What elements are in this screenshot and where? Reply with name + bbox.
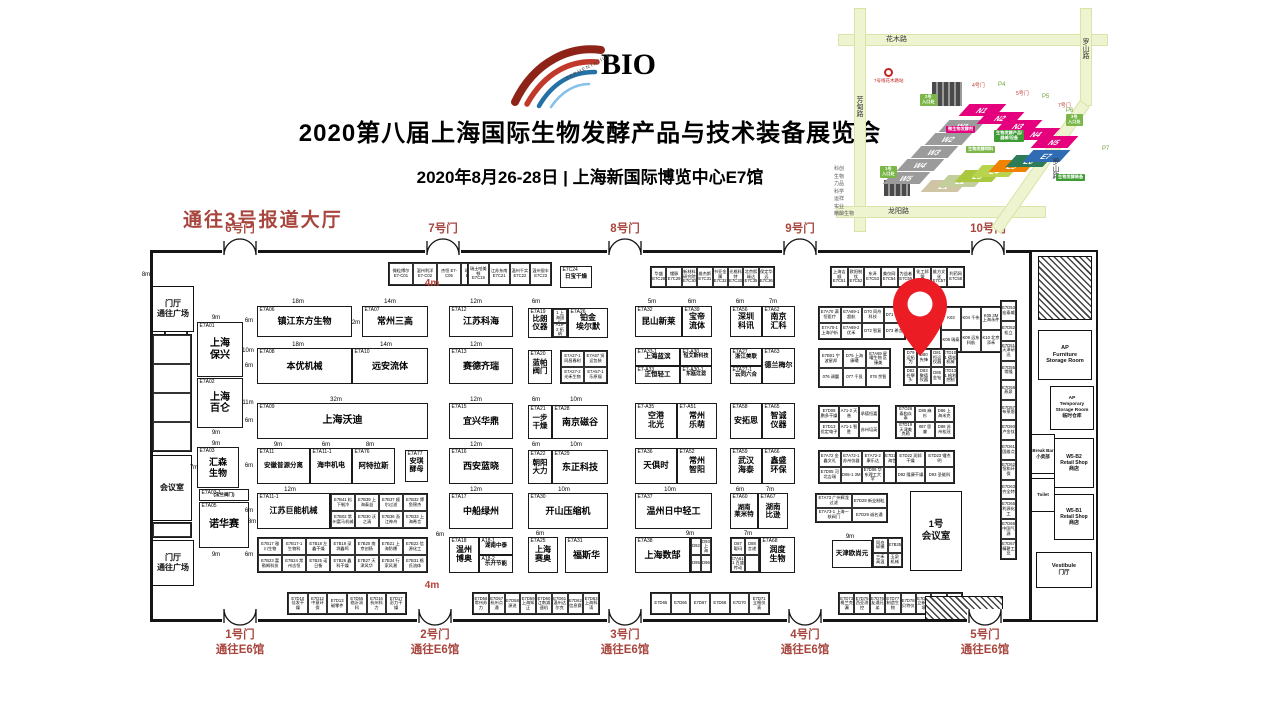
room-门厅-通往广场: 门厅 通往广场 — [152, 286, 194, 332]
dimension-label: 10m — [664, 487, 676, 493]
door-icon — [970, 237, 1006, 260]
booth-E7A62: E7A62南京 汇科 — [762, 306, 795, 337]
mini-booth: E7D12 中意环保 — [308, 593, 328, 614]
booth-code: E7A08 — [260, 350, 275, 355]
gate-label-6号门: 6号门 — [225, 222, 254, 237]
booth-E7A07: E7A07常州三高 — [362, 306, 428, 337]
mini-booth: 杰恒 E7-C05 — [437, 263, 461, 285]
dimension-label: 18m — [292, 299, 304, 305]
mini-booth: E7B33 上海希言 — [403, 511, 427, 528]
booth-grid: E7D56 常州苏力E7D57 杭州点通E7D58 源进E7D59 上海知正E7… — [472, 592, 600, 615]
dimension-label: 6m — [245, 552, 253, 558]
mini-booth: 新材料研究院 E7C30 — [682, 267, 697, 287]
dimension-label: 32m — [330, 397, 342, 403]
door-icon — [222, 237, 258, 260]
map-label-P7: P7 — [1102, 146, 1109, 152]
gate-label-7号门: 7号门 — [428, 222, 457, 237]
booth-name: 上海数郜 — [644, 550, 680, 560]
mini-booth: D83 聚德仪器 — [917, 367, 930, 385]
dimension-label: 12m — [470, 397, 482, 403]
booth-E7A15: E7A15宜兴华鼎 — [449, 403, 513, 439]
booth-E7A21: E7A21一步 干燥 — [528, 405, 552, 439]
door-icon — [222, 604, 258, 627]
booth-E7A29: E7A29东正科技 — [552, 450, 608, 484]
dimension-label: 6m — [736, 299, 744, 305]
mini-booth: D93 圣能科 — [925, 467, 954, 483]
mini-booth: E7D06 华东理工大学 — [862, 467, 884, 483]
dimension-label: 6m — [245, 318, 253, 324]
booth-name: 南京磁谷 — [562, 417, 598, 427]
mini-booth: D70 同舟科技 — [862, 307, 884, 323]
booth-name: 温州 博奥 — [456, 546, 472, 564]
booth-code: E7A62 — [765, 308, 780, 313]
map-tag: 生物发酵产品/ 器械/设备 — [994, 130, 1024, 142]
corridor-label: 通往3号报道大厅 — [183, 205, 343, 232]
booth-E7-A35: E7-A35空港 北光 — [635, 403, 677, 439]
dimension-label: 6m — [736, 487, 744, 493]
booth-E7A32: E7A32昆山新莱 — [635, 306, 682, 337]
booth-name: 天津欧尚元 — [836, 550, 869, 557]
booth-E7A65: E7A65智诚 仪器 — [762, 403, 795, 439]
mini-booth: A71-2 天香 — [839, 406, 859, 422]
mini-booth: 苏州培英 — [859, 422, 879, 438]
road — [854, 8, 866, 232]
mini-booth: D88 言递 — [745, 538, 759, 555]
dimension-label: 9m — [846, 534, 854, 540]
booth-name: 恒艾斯科技 — [683, 354, 708, 360]
booth-E7A19: E7A19比朗 仪器 — [528, 308, 552, 338]
booth-grid: E7D53 宏泰威E7D52 松立E7D51 天津研迅E7D55 常隆E7D58… — [1000, 300, 1017, 560]
mini-booth: E7A61-1 百盛传动 — [731, 555, 745, 572]
booth-grid: 瑞士哈美顿 E7C19江苏东南 E7C21温州千实 E7C22温州银丰 E7C2… — [467, 262, 552, 286]
mini-booth: E7B02 常州富马机械 — [331, 511, 355, 528]
mini-booth: E7A72 金鑫文礼 — [819, 451, 841, 467]
booth-grid — [152, 522, 192, 538]
booth-E7A02: E7A02上海 百仑 — [197, 378, 243, 428]
metro-station-icon: 7号线花木路站 — [874, 68, 904, 83]
mini-booth: E7D67 — [690, 593, 710, 614]
booth-code: E7A03-1 — [202, 491, 221, 496]
booth-code: E7A36 — [638, 450, 653, 455]
booth-code: E7-A33 — [638, 368, 655, 373]
booth-code: E7A22 — [531, 452, 546, 457]
mini-booth: D95 — [691, 555, 701, 572]
mini-booth: 微粒博尔 E7-C01 — [389, 263, 413, 285]
mini-booth: E7D62 恒和环保 — [1001, 460, 1016, 480]
booth-code: E7A33-1 — [638, 350, 657, 355]
booth-name: 上海沃迪 — [323, 415, 363, 426]
map-tag: 生物发酵装备 — [1056, 174, 1085, 181]
mini-booth: E7D61 温州达尔克 — [552, 593, 568, 614]
mini-booth: E7A70-1 上海沪析 — [819, 323, 841, 339]
mini-booth: E7B17-1 生物科 — [282, 538, 306, 555]
mini-booth: E7D22 润邦干燥 — [896, 451, 925, 467]
road — [838, 34, 1108, 46]
map-tag: 1号 入口处 — [880, 166, 897, 178]
booth-E7A18: E7A18温州 博奥 — [449, 537, 479, 573]
map-side-text: 科创 生物 力品 科学 运祥 实业 精酿生物 — [834, 166, 854, 219]
mini-booth: D65-1 3M — [841, 467, 863, 483]
dimension-label: 6m — [245, 418, 253, 424]
mini-booth: E7B19 深圳鑫鸣 — [330, 538, 354, 555]
map-tag: 微生物发酵剂 — [946, 126, 975, 133]
booth-code: E7A28 — [555, 407, 570, 412]
booth-name: 鑫盛 环保 — [771, 457, 787, 475]
booth-code: E7A12 — [452, 308, 467, 313]
booth-name: 润度 生物 — [770, 546, 786, 564]
booth-code: E7A26 — [571, 310, 586, 315]
mini-booth — [153, 422, 191, 451]
mini-booth: D72 智复 — [862, 323, 884, 339]
mini-booth: E7D65 — [651, 593, 671, 614]
booth-E7A05: E7A05诺华赛 — [199, 502, 249, 548]
booth-code: E7A25 — [531, 539, 546, 544]
gate-label-5号门: 5号门 通往E6馆 — [961, 628, 1010, 658]
booth-name: 温州日中轻工 — [646, 506, 700, 516]
booth-code: E7A37 — [638, 495, 653, 500]
mini-booth: 077 千艮 — [843, 368, 867, 387]
dimension-label: 6m — [688, 299, 696, 305]
map-label-龙阳路: 龙阳路 — [888, 208, 909, 215]
mini-booth: 上海吉顺 E7C51 — [831, 267, 848, 287]
booth-grid: D87 聪玛D88 言递E7A61-1 百盛传动 — [730, 537, 760, 573]
booth-code: E7A19 — [531, 310, 546, 315]
dimension-label: 9m — [212, 315, 220, 321]
dimension-label: 6m — [322, 442, 330, 448]
booth-E7A06: E7A06镇江东方生物 — [257, 306, 352, 337]
mini-booth: E7B22 信源化工 — [403, 538, 427, 555]
mini-booth: E7D57 杭州点通 — [489, 593, 505, 614]
booth-name: 昆山新莱 — [641, 317, 675, 327]
booth-grid: E7A72 金鑫文礼E7A72-1 苏州仪器E7A72-2 康乐达E7D21 上… — [818, 450, 906, 484]
mini-booth: 镭脉 E7C29 — [666, 267, 681, 287]
exhibition-floorplan-flyer: { "header": { "logo_text": "BIO", "logo_… — [0, 0, 1280, 720]
booth-E7A26: E7A26铂金 埃尔默 — [568, 308, 608, 338]
booth-E7A09: E7A09上海沃迪 — [257, 403, 428, 439]
dimension-label: 6m — [532, 397, 540, 403]
mini-booth: K04 千伟 — [961, 307, 981, 330]
mini-booth: E7A27-2 光禾生物 — [561, 367, 584, 383]
booth-E7A39: E7A39宝帝 流体 — [682, 306, 712, 337]
room-Break Bar-小卖部: Break Bar 小卖部 — [1031, 434, 1055, 474]
room-1号-会议室: 1号 会议室 — [910, 491, 962, 571]
room-AP-Furniture-Storage Room: AP Furniture Storage Room — [1038, 330, 1092, 380]
venue-map-inset: W1W2W3W4W5N1N2N3N4N5E1E2E3E4E5E6E7花木路罗山路… — [828, 8, 1128, 232]
map-label-花木路: 花木路 — [886, 36, 907, 43]
room-Toilet: Toilet — [1031, 478, 1055, 512]
booth-E7-A33: E7-A33正恒轻工 — [635, 366, 680, 384]
map-tag: 生物发酵饲料 — [966, 146, 995, 153]
hall-W2: W2 — [925, 133, 973, 145]
mini-booth: 玉泉机械 — [888, 553, 903, 568]
mini-booth: 温州千实 E7C22 — [510, 263, 531, 285]
mini-booth: E7B23 富勒姆科技 — [258, 555, 282, 572]
booth-code: E7A05 — [202, 504, 217, 509]
mini-booth: E7B26 鑫科干燥 — [330, 555, 354, 572]
booth-name: 空港 北光 — [648, 412, 664, 430]
mini-booth: D82 任學头 — [904, 367, 917, 385]
mini-booth: E7A73 广州辉龙过滤 — [816, 494, 852, 508]
mini-booth: E7D60 卢金钛 — [1001, 420, 1016, 440]
booth-code: E7A52 — [680, 450, 695, 455]
mini-booth: E7D70 — [730, 593, 750, 614]
booth-grid: D92D93 上海D95D96 — [690, 537, 712, 573]
mini-booth: D85 麻杉 — [915, 406, 934, 422]
booth-E7A27-1: E7A27-1云同六合 — [730, 366, 762, 384]
stairs-hatch — [1038, 256, 1092, 320]
booth-E7A52: E7A52常州 智阳 — [677, 448, 717, 484]
booth-name: 云同六合 — [735, 372, 757, 378]
booth-code: E7A16 — [452, 450, 467, 455]
booth-grid: E7B41 松下制冷E7B39 上海泰益E7B37 顺尔过滤E7B32 博鱼锦杰… — [330, 493, 428, 529]
mini-booth: E7B01 宁波星邦 — [819, 349, 843, 368]
booth-E7A28: E7A28南京磁谷 — [552, 405, 608, 439]
booth-name: 上海 保兴 — [210, 338, 230, 360]
room-门厅-通往广场: 门厅 通往广场 — [152, 540, 194, 586]
mini-booth: E7D60 江南减速机 — [536, 593, 552, 614]
room-W5-B2-Retail Shop-商店: W5-B2 Retail Shop 商店 — [1054, 438, 1094, 488]
booth-code: E7A77 — [408, 452, 423, 457]
mini-booth: 书亚金属 E7C32 — [713, 267, 728, 287]
booth-E7A59: E7A59武汉 海泰 — [730, 448, 762, 484]
mini-booth: 华盛 E7C28 — [651, 267, 666, 287]
mini-booth — [153, 364, 191, 393]
booth-code: E7A32 — [638, 308, 653, 313]
mini-booth: E7B27 天津风华 — [355, 555, 379, 572]
mini-booth: E7B37 顺尔过滤 — [379, 494, 403, 511]
map-label-P5: P5 — [1042, 94, 1049, 100]
mini-booth: E7D66 — [671, 593, 691, 614]
dimension-label: 7m — [190, 465, 198, 471]
dimension-label: 8m — [366, 442, 374, 448]
mini-booth: E7A70 满恒医疗 — [819, 307, 841, 323]
booth-name: 中船绿州 — [463, 506, 499, 516]
booth-name: 西安蓝晓 — [463, 461, 499, 471]
mini-booth: E7D52 松立 — [1001, 321, 1016, 341]
booth-name: 天俱时 — [643, 461, 669, 471]
booth-code: E7A60 — [733, 495, 748, 500]
booth-grid: E7D08 鹏多干燥A71-2 天香承德恒嘉E7D13 优定电子A71-1 智胜… — [818, 405, 880, 439]
mini-booth: E7D56 常州苏力 — [473, 593, 489, 614]
booth-name: 宝帝 流体 — [689, 313, 705, 331]
mini-booth: E7D59 上海知正 — [520, 593, 536, 614]
booth-code: E7-A30-1 — [683, 368, 704, 373]
mini-booth: E7A27-1 同昌春树 — [561, 351, 584, 367]
booth-code: E7-A30 — [683, 350, 700, 355]
booth-code: E7A18 — [452, 539, 467, 544]
booth-E7A60: E7A60湖南 莱米特 — [730, 493, 758, 529]
booth-name: 上海 赛奥 — [535, 546, 551, 564]
booth-name: 宜兴华鼎 — [463, 416, 499, 426]
mini-booth: E7B31 格氏流体 — [403, 555, 427, 572]
booth-name: 东正科技 — [562, 462, 598, 472]
dimension-label: 8m — [248, 519, 256, 525]
booth-name: 阿特拉斯 — [359, 462, 389, 470]
booth-name: 浙江美联 — [735, 354, 757, 360]
booth-name: 日宝干燥 — [565, 274, 587, 280]
location-pin — [890, 276, 950, 358]
mini-booth: E7A73-1 上海一核阀门 — [816, 508, 852, 522]
booth-E7A67: E7A67湖南 比逊 — [758, 493, 788, 529]
mini-booth: E7D13 磁零件 — [327, 593, 347, 614]
mini-booth: D86 上海米克 — [935, 406, 954, 422]
booth-E7A76: E7A76阿特拉斯 — [352, 448, 395, 484]
booth-code: E7A56 — [733, 308, 748, 313]
booth-code: A18-1 — [482, 539, 495, 544]
booth-name: 一步 干燥 — [533, 414, 548, 431]
dimension-label: 7m — [769, 299, 777, 305]
dimension-label: 6m — [245, 508, 253, 514]
mini-booth: E7D76 友通兄弟 — [870, 593, 885, 614]
map-label-芳甸路: 芳甸路 — [856, 96, 863, 117]
mini-booth: E7B25 诺日衡 — [306, 555, 330, 572]
booth-name: 江苏巨能机械 — [270, 507, 318, 516]
mini-booth: E7B32 博鱼锦杰 — [403, 494, 427, 511]
mini-booth — [153, 523, 191, 537]
mini-booth: 同舟纵横 — [873, 538, 888, 553]
booth-code: E7A39 — [685, 308, 700, 313]
booth-name: 福斯华 — [573, 550, 600, 560]
booth-E7A66: E7A66鑫盛 环保 — [762, 448, 795, 484]
dimension-label: 9m — [274, 442, 282, 448]
room-Vestibule-门厅: Vestibule 门厅 — [1036, 552, 1092, 588]
mini-booth: E7B30 沃之清 — [355, 511, 379, 528]
hall-W4: W4 — [897, 159, 945, 171]
booth-name: 镇江东方生物 — [277, 316, 331, 326]
booth-code: E7A13 — [452, 350, 467, 355]
booth-code: E7A29 — [555, 452, 570, 457]
door-icon — [967, 604, 1003, 627]
dimension-label: 10m — [570, 397, 582, 403]
booth-code: E7C24 — [563, 268, 578, 273]
booth-code: E7-A51 — [680, 405, 697, 410]
booth-E7A25: E7A25上海 赛奥 — [528, 537, 558, 573]
booth-E7A12: E7A12江苏科海 — [449, 306, 513, 337]
map-label-7号门: 7号门 — [1058, 104, 1071, 109]
map-tag: 2号 入口处 — [920, 94, 937, 106]
mini-booth: E7D78 贝特仪 — [901, 593, 916, 614]
booth-code: E7A59 — [733, 450, 748, 455]
gate-label-4号门: 4号门 通往E6馆 — [781, 628, 830, 658]
mini-booth: E7D65 利源化工 — [1001, 499, 1016, 519]
door-icon — [787, 604, 823, 627]
booth-code: E7A17 — [452, 495, 467, 500]
booth-code: A18-2 — [482, 557, 495, 562]
booth-name: 朝阳 大力 — [533, 459, 548, 476]
dimension-label: 2m — [352, 320, 360, 326]
mini-booth: D87 聪玛 — [731, 538, 745, 555]
dimension-label: 9m — [212, 441, 220, 447]
booth-code: E7A67 — [761, 495, 776, 500]
map-label-4号门: 4号门 — [972, 84, 985, 89]
mini-booth: E7B24 常州志恒 — [282, 555, 306, 572]
mini-booth: E7A57-1 乐原福 — [584, 367, 607, 383]
mini-booth: E7B20 南京创扬 — [355, 538, 379, 555]
booth-grid: E7D10 佳发干燥E7D12 中意环保E7D13 磁零件E7D55 临沂润科E… — [287, 592, 407, 615]
mini-booth: E7D53 宏泰威 — [1001, 301, 1016, 321]
door-icon — [782, 237, 818, 260]
dimension-label: 18m — [292, 342, 304, 348]
booth-E7A11-1: E7A11-1江苏巨能机械 — [257, 493, 330, 529]
booth-name: 比朗 仪器 — [533, 315, 548, 332]
dimension-label: 12m — [470, 442, 482, 448]
dimension-label: 9m — [686, 531, 694, 537]
hall-W3: W3 — [911, 146, 959, 158]
dimension-label: 14m — [380, 342, 392, 348]
booth-name: 智诚 仪器 — [771, 412, 787, 430]
mini-booth: E7D58 源进 — [505, 593, 521, 614]
dimension-label: 6m — [532, 299, 540, 305]
mini-booth: K09 远东 科航 — [961, 330, 981, 353]
mini-booth: D88 苏州松冠 — [935, 422, 954, 438]
booth-E7A11-1: E7A11-1海申机电 — [310, 448, 352, 484]
booth-name: 远安流体 — [372, 361, 408, 371]
mini-booth: 江苏东南 E7C21 — [489, 263, 510, 285]
booth-code: E7A38 — [638, 539, 653, 544]
mini-booth: E7A69-1 超航 — [841, 307, 863, 323]
booth-name: 汇森 生物 — [209, 457, 227, 477]
dimension-label: 6m — [245, 463, 253, 469]
booth-E7A22: E7A22朝阳 大力 — [528, 450, 552, 484]
booth-name: 上海 百仑 — [210, 392, 230, 414]
dimension-label: 6m — [245, 363, 253, 369]
dimension-label: 12m — [284, 487, 296, 493]
dimension-label: 5m — [648, 299, 656, 305]
booth-code: E7A11-1 — [260, 495, 279, 500]
mini-booth: D92 隆康干燥 — [896, 467, 925, 483]
booth-E7A11: E7A11安徽普源分离 — [257, 448, 310, 484]
mini-booth: 三禾高温 — [873, 553, 888, 568]
mini-booth: E7B18 左鑫干燥 — [306, 538, 330, 555]
mini-booth: D92 — [691, 538, 701, 555]
booth-code: E7A09 — [260, 405, 275, 410]
mini-booth: E7D68 — [710, 593, 730, 614]
booth-grid: E7A27-1 同昌春树E7A57 贤运包装E7A27-2 光禾生物E7A57-… — [560, 350, 608, 384]
mini-booth: E7D63 上海科涛 — [583, 593, 599, 614]
dimension-label: 6m — [532, 442, 540, 448]
mini-booth: E7D55 常隆 — [1001, 361, 1016, 381]
mini-booth: E7D16 杭州科力 — [367, 593, 387, 614]
mini-booth: E7D05 河北吉瑞 — [819, 467, 841, 483]
hall-E7: E7 — [1023, 150, 1071, 162]
mini-booth: E7D58 燕泉 — [1001, 380, 1016, 400]
booth-E7A77: E7A77安琪 酵母 — [405, 450, 428, 482]
gate-label-3号门: 3号门 通往E6馆 — [601, 628, 650, 658]
dimension-label: 9m — [212, 552, 220, 558]
mini-booth: D96 — [701, 555, 711, 572]
booth-E7A58: E7A58安拓思 — [730, 403, 762, 439]
booth-code: E7A27-1 — [733, 368, 752, 373]
mini-booth: E7D28 新业制粒 — [852, 494, 888, 508]
mini-booth: E7D08 鹏多干燥 — [819, 406, 839, 422]
booth-name: 武汉 海泰 — [738, 457, 754, 475]
mini-booth: E7D57 布莱恩 — [1001, 400, 1016, 420]
mini-booth: A19-1 上海国际 — [553, 309, 567, 323]
dimension-label: 14m — [384, 299, 396, 305]
booth-name: 湖南 莱米特 — [734, 504, 754, 519]
booth-code: E7A21 — [531, 407, 546, 412]
booth-code: E7A10 — [355, 350, 370, 355]
booth-name: 常州三高 — [377, 316, 413, 326]
mini-booth — [153, 335, 191, 364]
mini-booth: E7D13 优定电子 — [819, 422, 839, 438]
booth-name: 开山压缩机 — [545, 506, 590, 516]
booth-天津欧尚元: 天津欧尚元 — [832, 540, 872, 568]
booth-E7A03: E7A03汇森 生物 — [197, 447, 239, 488]
booth-E7A31: E7A31福斯华 — [565, 537, 608, 573]
dimension-label: 10m — [558, 487, 570, 493]
booth-name: 江苏科海 — [463, 316, 499, 326]
